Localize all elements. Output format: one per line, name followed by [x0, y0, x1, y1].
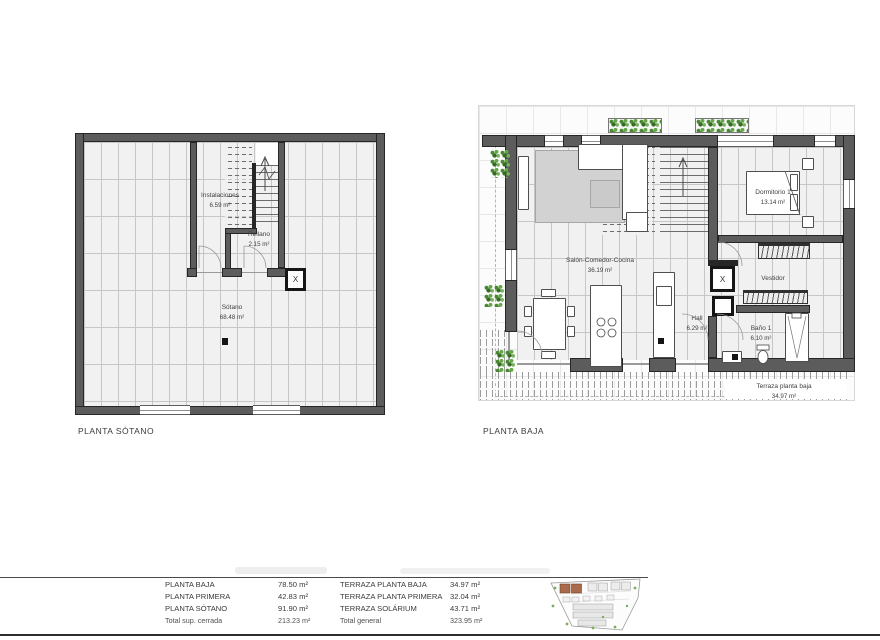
site-building: [588, 583, 597, 591]
highlighted-villa: [560, 584, 570, 593]
bed-fold-line: [785, 171, 800, 215]
summary-value: 78.50 m²: [278, 580, 308, 589]
toilet-tank: [757, 345, 769, 350]
summary-value: 43.71 m²: [450, 604, 480, 613]
summary-value: 213.23 m²: [278, 616, 310, 625]
floorplan-sheet: X Instalaciones 6.59 m² Rellano 2.15 m² …: [0, 0, 880, 640]
site-building-row: [573, 612, 613, 618]
toilet-bowl: [758, 351, 768, 364]
basement-plan: X Instalaciones 6.59 m² Rellano 2.15 m² …: [75, 133, 385, 415]
summary-value: 34.97 m²: [450, 580, 480, 589]
site-building: [563, 597, 570, 602]
door-swing-arc: [244, 246, 266, 268]
scan-smudge: [400, 568, 550, 574]
site-building-row: [573, 604, 613, 610]
site-building: [599, 583, 608, 591]
shower-head: [792, 313, 801, 318]
stair-direction-arrow: [261, 157, 269, 191]
ground-floor-plan-title: PLANTA BAJA: [483, 426, 544, 436]
highlighted-villa: [572, 584, 582, 593]
cooktop-burner: [608, 329, 616, 337]
summary-label: TERRAZA SOLÁRIUM: [340, 604, 417, 613]
site-building-row: [578, 620, 606, 626]
summary-label: TERRAZA PLANTA BAJA: [340, 580, 427, 589]
summary-label: PLANTA BAJA: [165, 580, 215, 589]
site-building: [572, 597, 579, 602]
summary-label: PLANTA SÓTANO: [165, 604, 227, 613]
summary-label: TERRAZA PLANTA PRIMERA: [340, 592, 442, 601]
cooktop-burner: [608, 318, 616, 326]
door-swing-arc: [517, 331, 542, 356]
door-swing-arc: [718, 242, 742, 266]
basement-plan-title: PLANTA SÓTANO: [78, 426, 154, 436]
site-building: [622, 582, 631, 590]
door-swing-arc: [682, 314, 708, 340]
summary-value: 323.95 m²: [450, 616, 482, 625]
stair-direction-arrow: [679, 158, 687, 196]
summary-label: PLANTA PRIMERA: [165, 592, 230, 601]
cooktop-burner: [597, 318, 605, 326]
cooktop-burner: [597, 329, 605, 337]
table-bottom-rule: [0, 634, 880, 636]
door-swing-arc: [199, 246, 221, 268]
site-building: [595, 596, 602, 601]
site-building: [607, 595, 614, 600]
door-swing-arc: [717, 314, 743, 340]
ground-floor-plan: X: [470, 100, 860, 415]
ground-floor-annotations: [470, 100, 860, 415]
summary-label: Total general: [340, 616, 381, 625]
summary-value: 91.90 m²: [278, 604, 308, 613]
scan-smudge: [235, 567, 327, 574]
summary-label: Total sup. cerrada: [165, 616, 222, 625]
shower-lines: [788, 316, 806, 358]
basement-annotations: [75, 133, 385, 415]
summary-value: 32.04 m²: [450, 592, 480, 601]
site-building: [583, 596, 590, 601]
summary-value: 42.83 m²: [278, 592, 308, 601]
site-building: [611, 582, 620, 590]
site-plan-thumbnail: [543, 576, 645, 634]
stair-break-line: [259, 167, 275, 179]
